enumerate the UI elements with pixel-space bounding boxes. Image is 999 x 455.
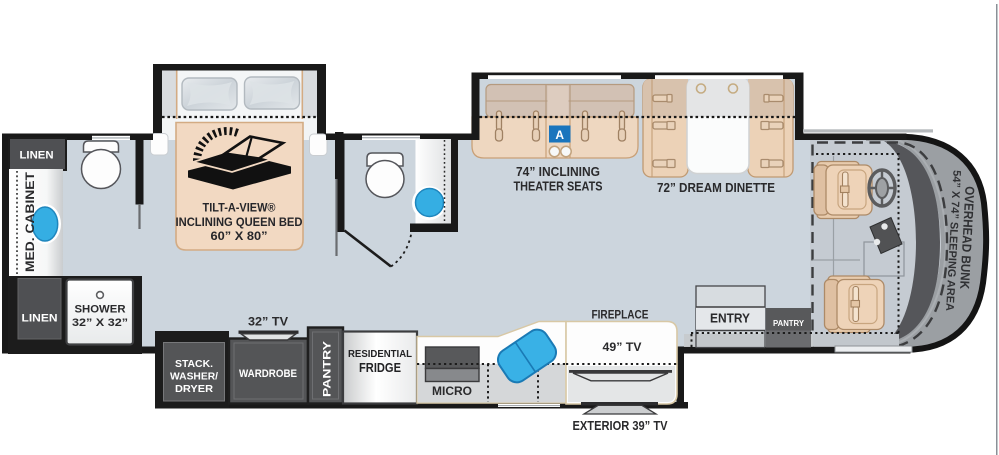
svg-text:EXTERIOR 39” TV: EXTERIOR 39” TV (573, 418, 668, 433)
svg-text:DRYER: DRYER (175, 384, 214, 395)
svg-text:49” TV: 49” TV (603, 340, 642, 354)
svg-text:LINEN: LINEN (22, 313, 58, 325)
svg-text:MICRO: MICRO (432, 386, 472, 398)
svg-text:TILT-A-VIEW®: TILT-A-VIEW® (203, 201, 276, 215)
svg-text:STACK.: STACK. (175, 359, 213, 370)
svg-text:WASHER/: WASHER/ (170, 372, 218, 383)
svg-text:32” X 32”: 32” X 32” (72, 317, 128, 329)
svg-text:RESIDENTIAL: RESIDENTIAL (348, 348, 413, 360)
svg-text:72” DREAM DINETTE: 72” DREAM DINETTE (657, 180, 775, 195)
svg-text:74” INCLINING: 74” INCLINING (516, 164, 600, 179)
svg-text:FIREPLACE: FIREPLACE (592, 308, 649, 322)
svg-text:A: A (555, 128, 564, 142)
svg-text:FRIDGE: FRIDGE (359, 361, 401, 375)
svg-text:WARDROBE: WARDROBE (239, 368, 297, 380)
svg-text:PANTRY: PANTRY (322, 340, 334, 397)
svg-text:THEATER SEATS: THEATER SEATS (514, 179, 603, 194)
svg-text:32” TV: 32” TV (248, 317, 288, 329)
svg-text:MED. CABINET: MED. CABINET (25, 172, 37, 272)
svg-text:60” X 80”: 60” X 80” (211, 229, 268, 243)
svg-text:LINEN: LINEN (20, 150, 54, 162)
svg-text:SHOWER: SHOWER (75, 304, 126, 316)
svg-text:ENTRY: ENTRY (710, 312, 751, 326)
svg-text:PANTRY: PANTRY (773, 319, 805, 328)
svg-text:INCLINING QUEEN BED: INCLINING QUEEN BED (176, 215, 303, 229)
